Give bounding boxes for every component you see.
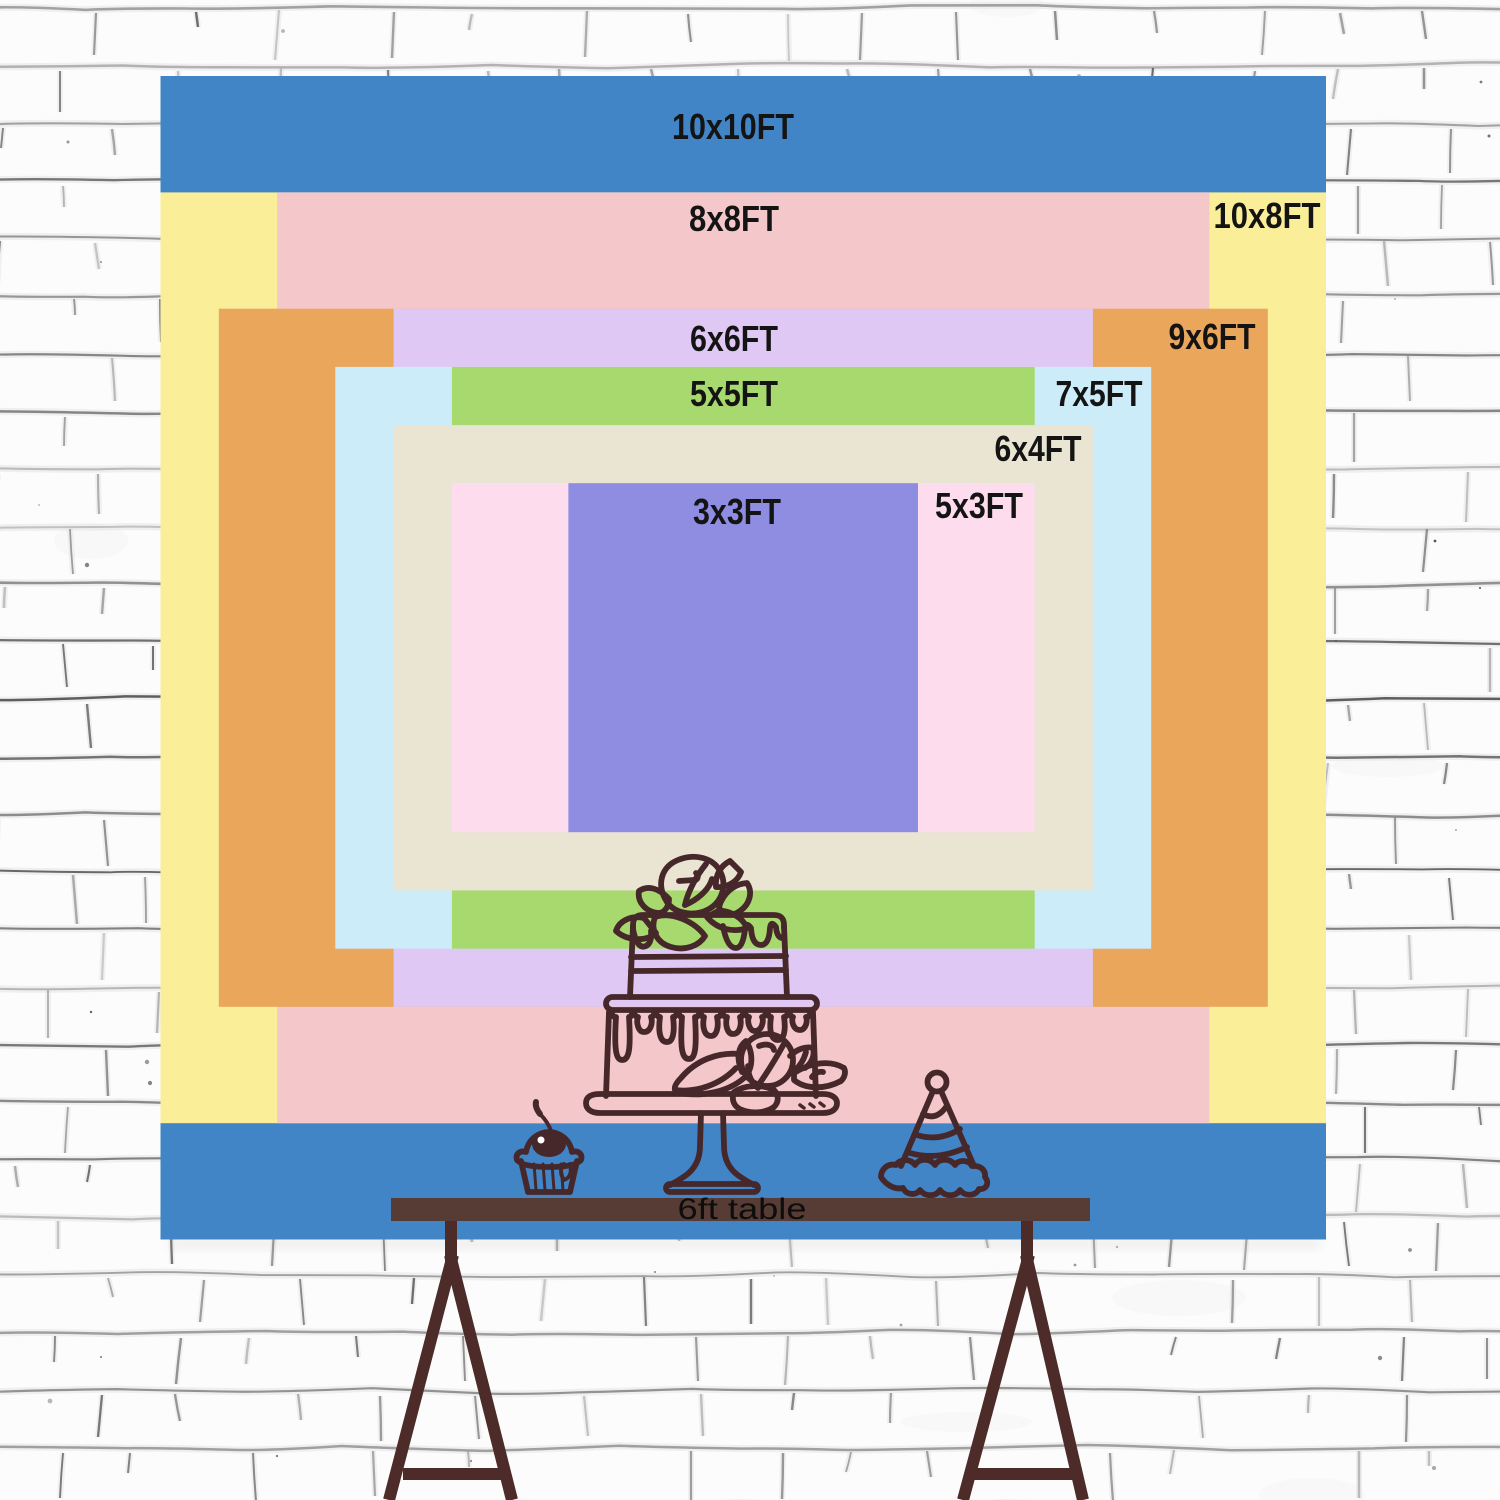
svg-text:5x5FT: 5x5FT (690, 373, 778, 414)
svg-text:3x3FT: 3x3FT (693, 491, 781, 532)
svg-text:10x10FT: 10x10FT (672, 106, 794, 147)
svg-text:6ft table: 6ft table (678, 1193, 807, 1226)
svg-text:9x6FT: 9x6FT (1169, 316, 1256, 357)
svg-text:10x8FT: 10x8FT (1214, 195, 1321, 236)
svg-text:6x6FT: 6x6FT (690, 318, 778, 359)
svg-text:5x3FT: 5x3FT (935, 485, 1023, 526)
svg-text:8x8FT: 8x8FT (689, 198, 779, 239)
svg-text:7x5FT: 7x5FT (1056, 373, 1143, 414)
svg-text:6x4FT: 6x4FT (995, 428, 1082, 469)
